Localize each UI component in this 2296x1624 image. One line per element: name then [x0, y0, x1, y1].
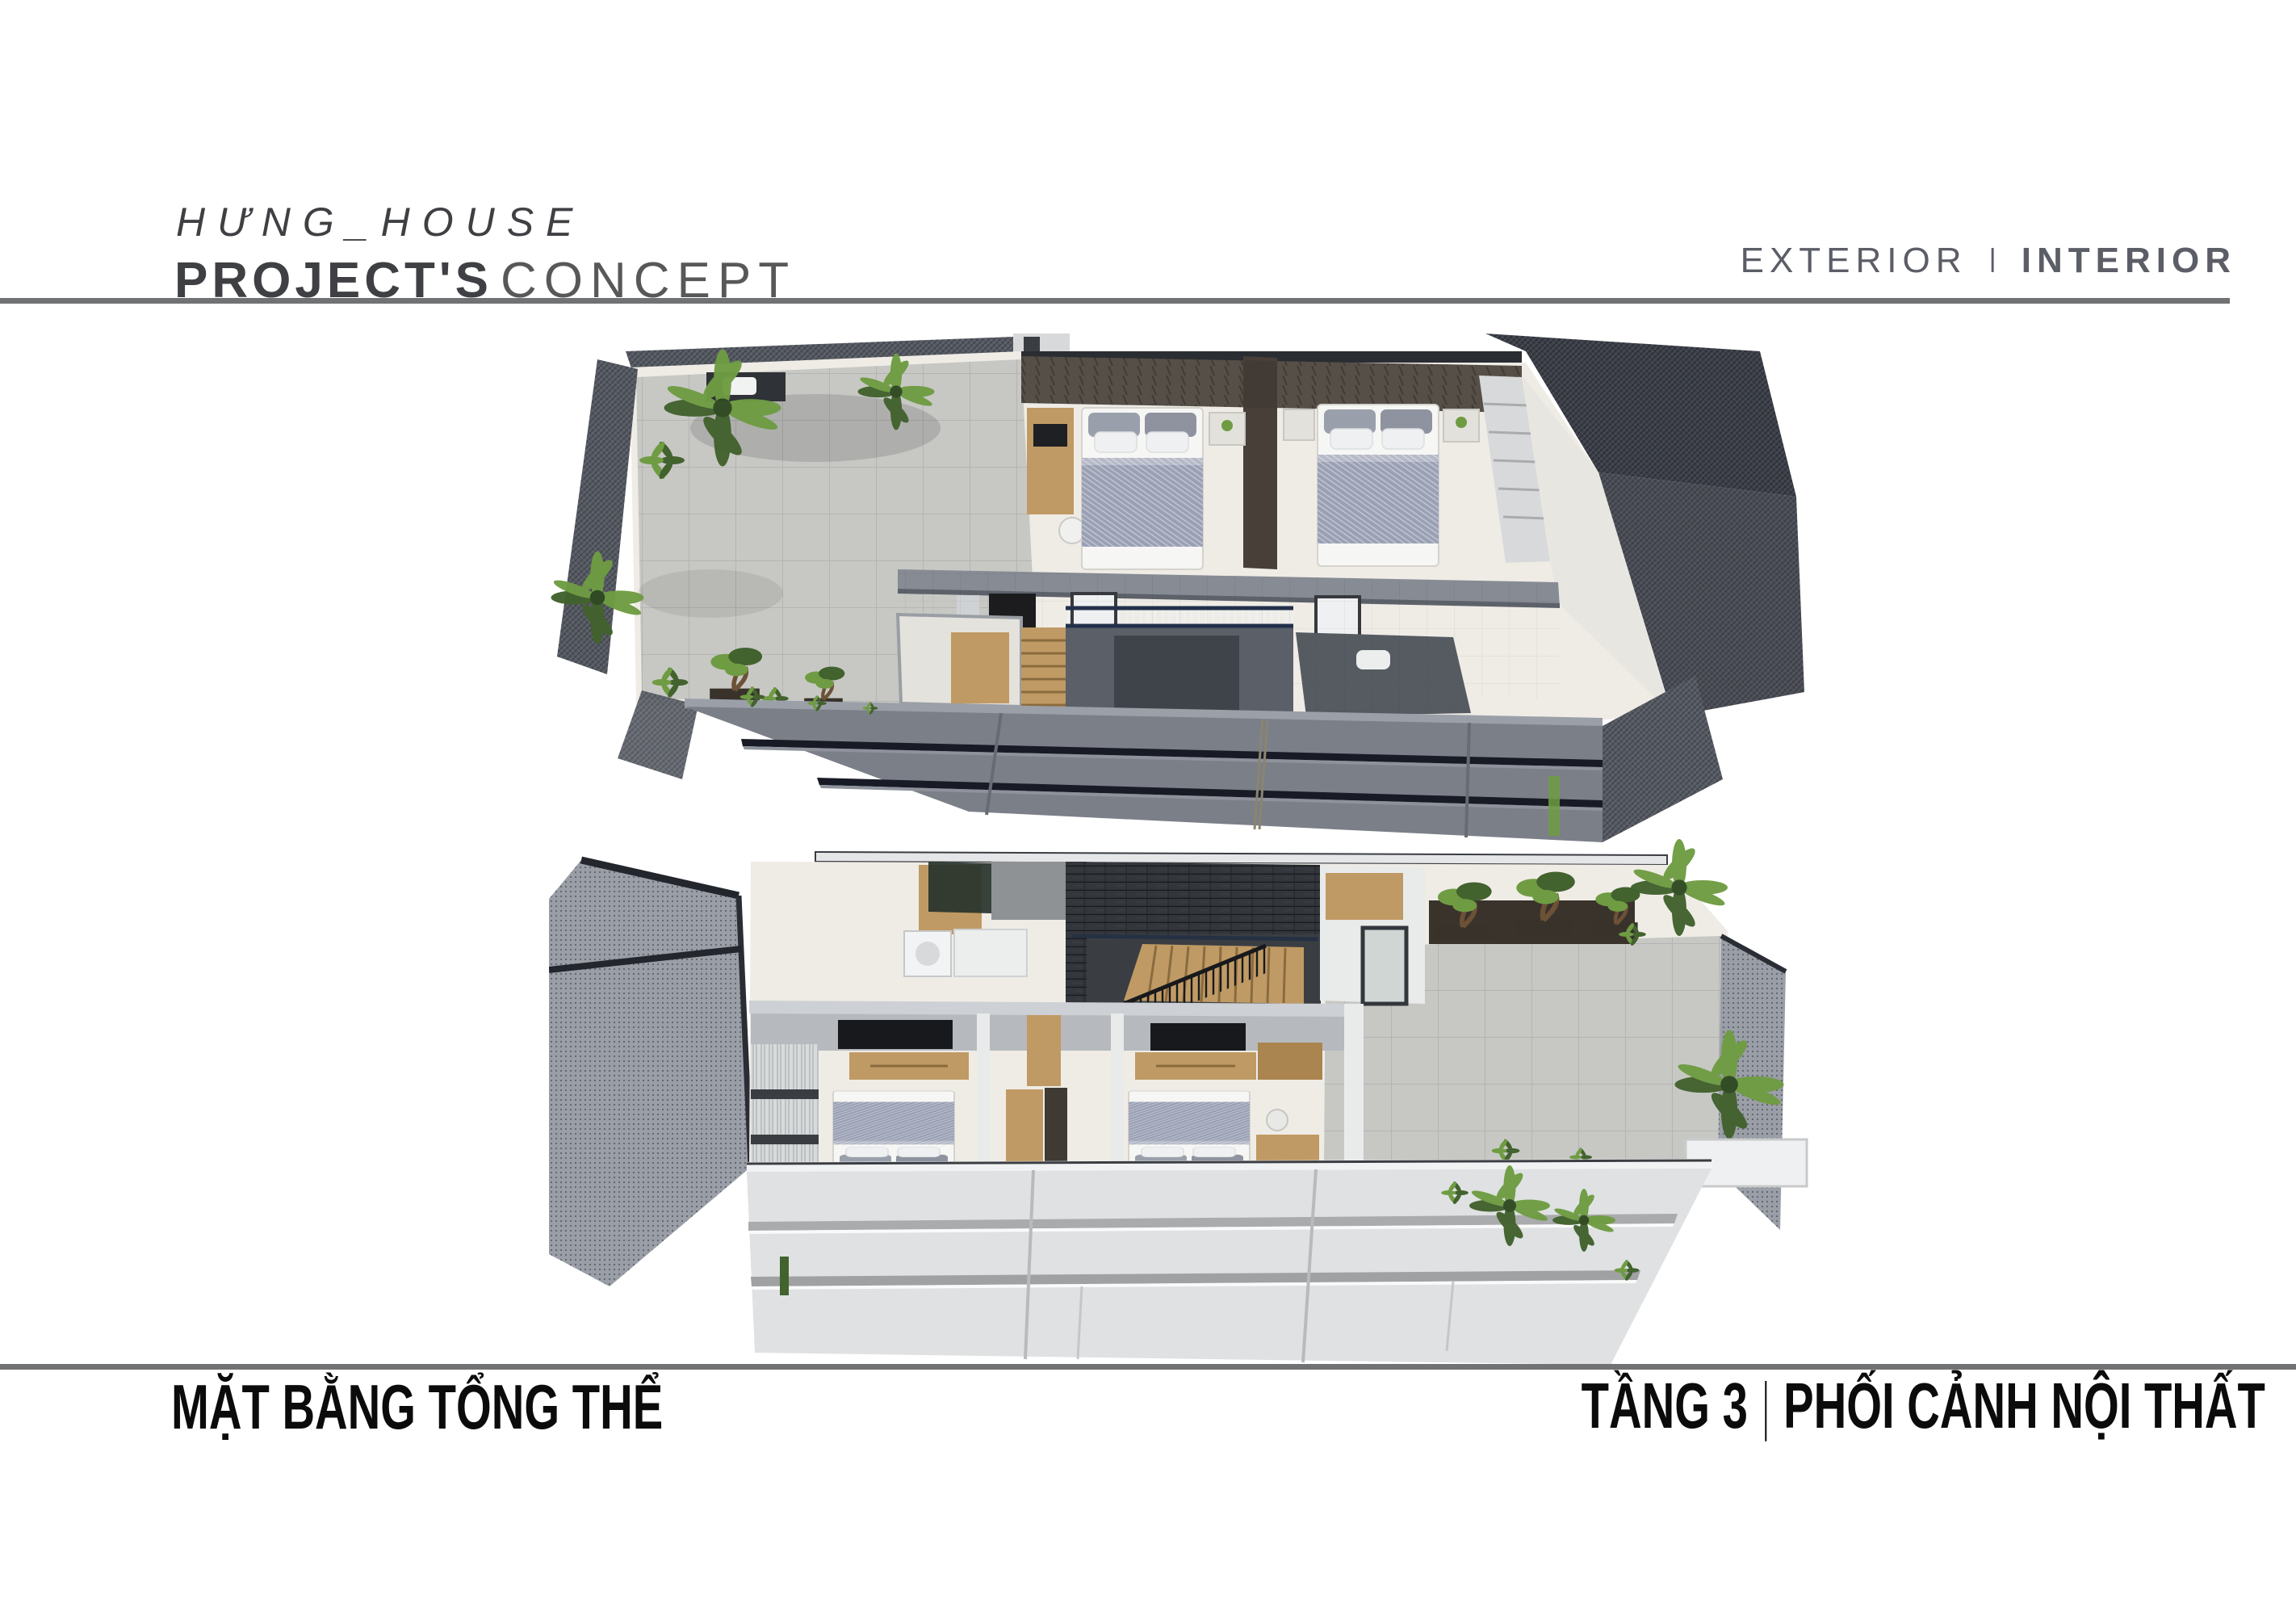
floor-label: TẦNG 3: [1582, 1370, 1748, 1442]
tv-bedroom-2: [1150, 1023, 1246, 1051]
bathroom-top: [1296, 632, 1471, 716]
mesh-wall-left: [549, 860, 751, 1286]
nav-interior: INTERIOR: [2022, 241, 2236, 280]
bed-1: [833, 1091, 954, 1169]
nav-separator: I: [1988, 243, 1999, 279]
monitor: [1033, 424, 1067, 447]
tv-bedroom-1: [838, 1020, 953, 1049]
curtain-wall: [751, 1044, 819, 1169]
subtitle-bold: PROJECT'S: [174, 253, 492, 308]
bed-1: [1082, 408, 1203, 569]
subtitle-light: CONCEPT: [501, 253, 796, 308]
footer-rule: [0, 1364, 2296, 1370]
nav-exterior: EXTERIOR: [1741, 241, 1967, 280]
render-bottom-floor-plan: [549, 839, 1807, 1365]
closet-room: [898, 615, 1021, 707]
facade-front: [747, 1159, 1712, 1365]
presentation-board: HƯNG_HOUSE PROJECT'SCONCEPT EXTERIORIINT…: [0, 0, 2296, 1624]
desk: [1027, 408, 1074, 514]
render-top-floor-plan: [551, 334, 1805, 842]
glass-door: [1363, 928, 1406, 1004]
bed-2: [1318, 405, 1439, 566]
footer-right-label: TẦNG 3|PHỐI CẢNH NỘI THẤT: [1582, 1374, 2265, 1439]
bed-2: [1129, 1091, 1250, 1169]
footer-separator: |: [1763, 1374, 1769, 1439]
view-label: PHỐI CẢNH NỘI THẤT: [1783, 1370, 2265, 1442]
stair-lobby: [1320, 865, 1425, 1004]
project-title: HƯNG_HOUSE: [176, 202, 584, 242]
project-subtitle: PROJECT'SCONCEPT: [174, 256, 796, 306]
footer-left-label: MẶT BẰNG TỔNG THỂ: [171, 1376, 663, 1439]
floor-plan-renders: [549, 327, 1825, 1377]
view-mode-switch: EXTERIORIINTERIOR: [1741, 243, 2236, 279]
